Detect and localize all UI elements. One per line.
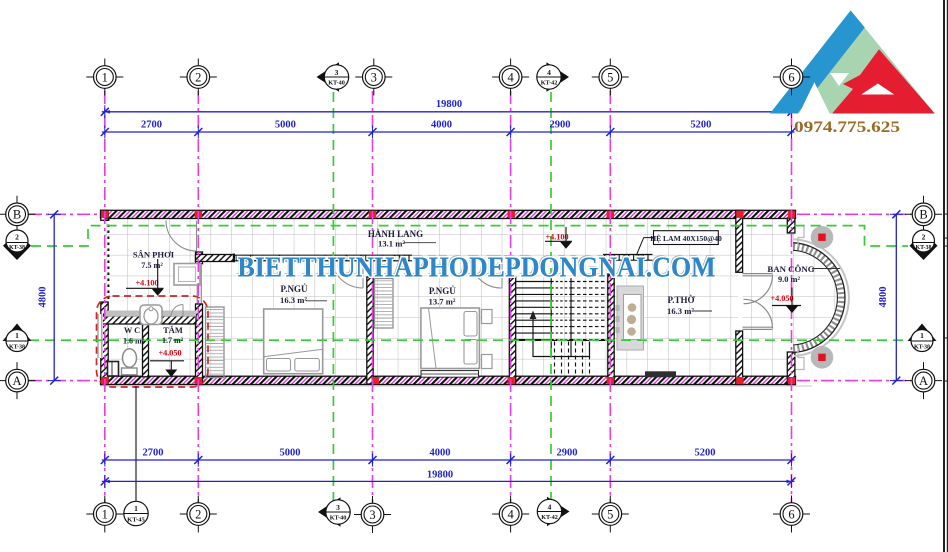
svg-text:BAN CÔNG: BAN CÔNG (767, 264, 814, 274)
svg-text:2900: 2900 (557, 448, 578, 459)
svg-text:1: 1 (102, 70, 108, 84)
svg-text:TẮM: TẮM (163, 325, 183, 335)
svg-text:KT-42: KT-42 (541, 79, 558, 86)
svg-text:B: B (919, 208, 927, 222)
svg-text:A: A (919, 374, 928, 388)
svg-text:+4.050: +4.050 (770, 294, 793, 303)
svg-text:13.1 m²: 13.1 m² (378, 239, 405, 249)
svg-text:5000: 5000 (280, 448, 301, 459)
svg-text:7.5 m²: 7.5 m² (141, 261, 163, 270)
svg-text:4800: 4800 (38, 287, 49, 308)
svg-text:16.3 m²: 16.3 m² (280, 295, 307, 305)
svg-text:4: 4 (548, 502, 552, 511)
svg-text:KT-42: KT-42 (541, 514, 558, 521)
svg-text:9.0 m²: 9.0 m² (778, 275, 801, 284)
svg-text:6: 6 (788, 70, 794, 84)
svg-text:2: 2 (195, 70, 201, 84)
svg-text:4000: 4000 (430, 448, 451, 459)
svg-text:3: 3 (335, 68, 339, 77)
svg-text:P.THỜ: P.THỜ (668, 295, 696, 305)
svg-text:19800: 19800 (436, 99, 462, 110)
svg-text:5200: 5200 (695, 448, 716, 459)
svg-text:4: 4 (547, 68, 551, 77)
svg-text:13.7 m²: 13.7 m² (429, 296, 456, 306)
svg-text:KT-45: KT-45 (127, 516, 145, 523)
svg-text:SÂN PHƠI: SÂN PHƠI (133, 250, 175, 260)
svg-text:1: 1 (15, 331, 19, 340)
svg-text:5000: 5000 (275, 119, 296, 130)
svg-text:2900: 2900 (550, 119, 571, 130)
svg-text:1.6 m²: 1.6 m² (123, 336, 145, 345)
svg-text:B: B (13, 208, 21, 222)
svg-text:+4.050: +4.050 (158, 349, 181, 358)
svg-text:KT-38: KT-38 (914, 344, 930, 350)
svg-text:4: 4 (507, 507, 514, 521)
svg-text:W C: W C (124, 326, 140, 335)
svg-text:KT-38: KT-38 (9, 344, 25, 350)
svg-text:HỆ LAM 40X150@40: HỆ LAM 40X150@40 (650, 234, 722, 243)
svg-text:BIETTHUNHAPHODEPDONGNAI.COM: BIETTHUNHAPHODEPDONGNAI.COM (238, 252, 716, 283)
svg-text:1: 1 (920, 331, 924, 340)
svg-text:P.NGỦ: P.NGỦ (429, 286, 456, 296)
svg-text:5200: 5200 (690, 119, 711, 130)
svg-text:2: 2 (15, 233, 19, 242)
svg-text:1: 1 (134, 504, 138, 513)
svg-text:1: 1 (102, 507, 108, 521)
svg-text:HÀNH LANG: HÀNH LANG (368, 229, 423, 239)
svg-text:2: 2 (195, 507, 201, 521)
svg-text:KT-40: KT-40 (330, 514, 347, 521)
svg-text:16.3 m²: 16.3 m² (667, 306, 694, 316)
svg-text:+4.100: +4.100 (545, 233, 568, 242)
svg-text:4000: 4000 (431, 119, 452, 130)
svg-text:2700: 2700 (141, 119, 162, 130)
svg-text:KT-40: KT-40 (328, 79, 345, 86)
svg-text:2: 2 (922, 233, 926, 242)
svg-text:5: 5 (607, 70, 613, 84)
svg-text:6: 6 (788, 507, 794, 521)
svg-text:KT-38: KT-38 (915, 245, 931, 251)
svg-text:4800: 4800 (878, 287, 889, 308)
svg-text:P.NGỦ: P.NGỦ (281, 284, 308, 294)
svg-text:1.7 m²: 1.7 m² (162, 336, 184, 345)
svg-text:3: 3 (371, 70, 377, 84)
svg-text:0974.775.625: 0974.775.625 (794, 119, 900, 136)
svg-text:5: 5 (607, 507, 613, 521)
svg-text:A: A (12, 374, 21, 388)
svg-text:KT-38: KT-38 (9, 245, 25, 251)
svg-text:+4.100: +4.100 (135, 279, 158, 288)
svg-text:3: 3 (369, 508, 375, 522)
svg-text:19800: 19800 (427, 470, 453, 481)
svg-text:2700: 2700 (143, 448, 164, 459)
svg-text:3: 3 (336, 503, 340, 512)
svg-text:4: 4 (507, 70, 514, 84)
